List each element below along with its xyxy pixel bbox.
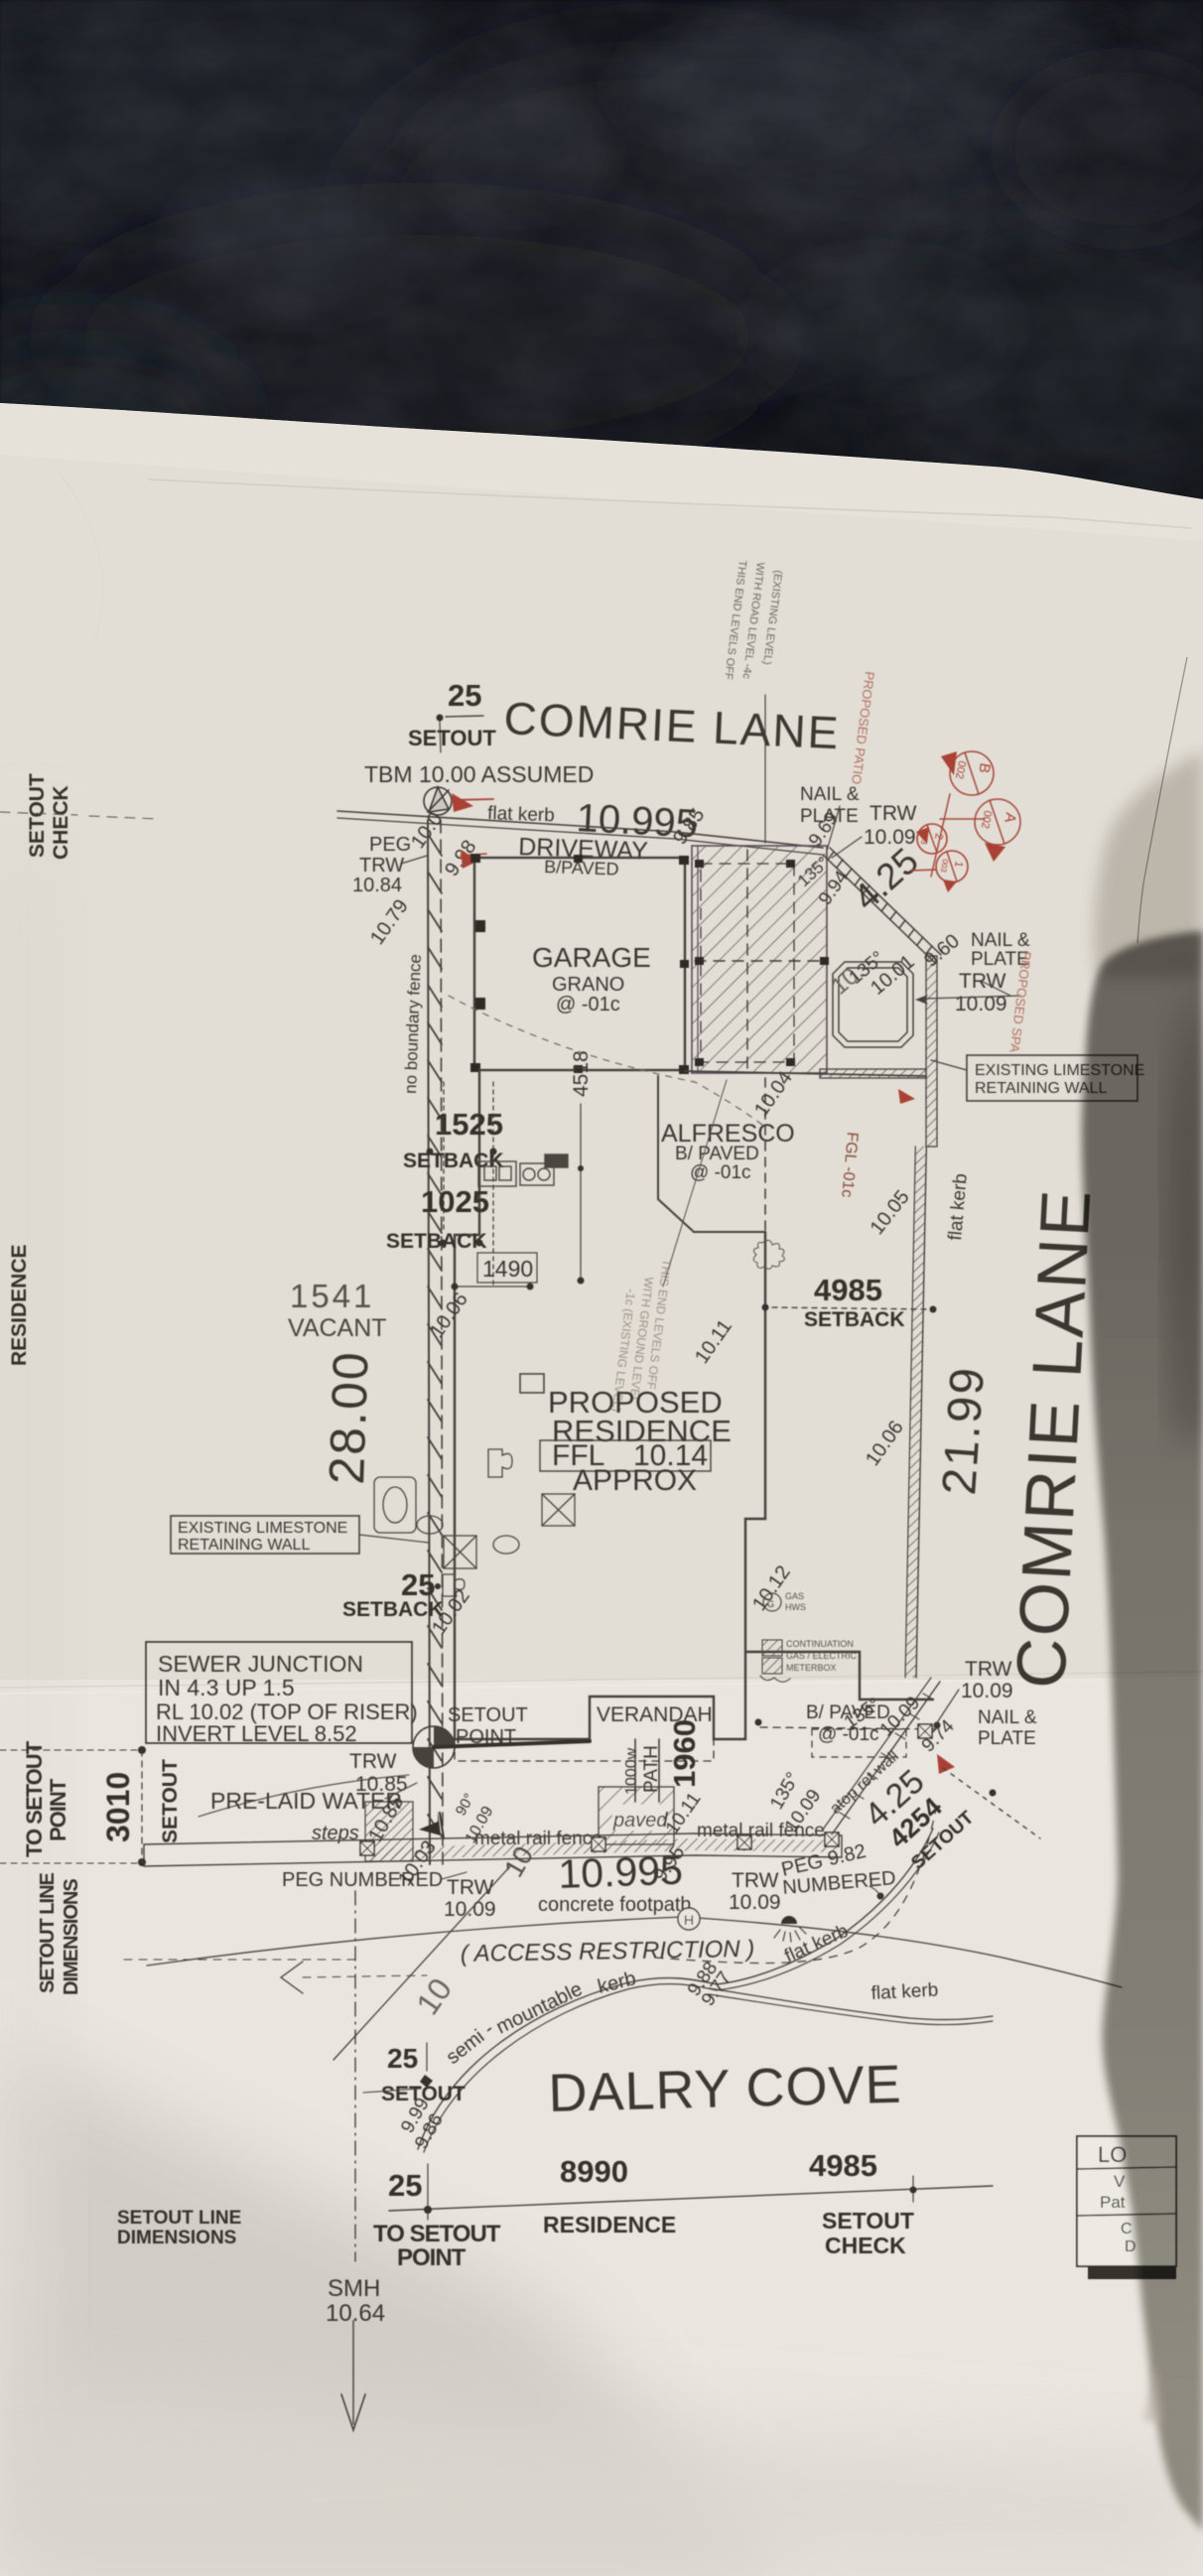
- svg-text:C: C: [1121, 2221, 1133, 2237]
- svg-text:APPROX: APPROX: [573, 1464, 697, 1497]
- svg-text:RESIDENCE: RESIDENCE: [8, 1244, 31, 1366]
- svg-text:4985: 4985: [814, 1273, 882, 1307]
- svg-text:CHECK: CHECK: [50, 785, 72, 860]
- svg-text:21.99: 21.99: [933, 1364, 995, 1497]
- svg-text:SETOUT: SETOUT: [408, 726, 496, 750]
- svg-text:10.09: 10.09: [961, 1680, 1013, 1702]
- svg-text:10.84: 10.84: [352, 875, 402, 896]
- svg-text:DIMENSIONS: DIMENSIONS: [117, 2228, 236, 2248]
- svg-text:concrete footpath: concrete footpath: [538, 1894, 692, 1916]
- svg-text:SETOUT: SETOUT: [159, 1759, 182, 1843]
- svg-text:DIMENSIONS: DIMENSIONS: [61, 1879, 82, 1995]
- svg-text:POINT: POINT: [397, 2244, 467, 2271]
- svg-text:TBM 10.00 ASSUMED: TBM 10.00 ASSUMED: [364, 761, 594, 787]
- svg-text:GAS: GAS: [785, 1591, 804, 1601]
- svg-text:SETOUT LINE: SETOUT LINE: [37, 1872, 59, 1993]
- svg-text:TRW: TRW: [965, 1658, 1012, 1681]
- svg-text:CHECK: CHECK: [825, 2233, 906, 2258]
- svg-text:1541: 1541: [290, 1278, 374, 1314]
- svg-text:SMH: SMH: [328, 2275, 380, 2302]
- svg-text:1490: 1490: [482, 1256, 533, 1282]
- svg-text:10.09: 10.09: [864, 826, 916, 849]
- svg-text:1025: 1025: [421, 1184, 489, 1219]
- svg-text:SETOUT: SETOUT: [26, 773, 49, 858]
- svg-text:TO SETOUT: TO SETOUT: [22, 1740, 47, 1857]
- svg-text:METERBOX: METERBOX: [786, 1663, 837, 1673]
- svg-text:IN 4.3 UP 1.5: IN 4.3 UP 1.5: [158, 1675, 295, 1700]
- svg-text:NAIL &: NAIL &: [978, 1707, 1037, 1728]
- svg-text:25: 25: [401, 1567, 435, 1602]
- svg-text:4518: 4518: [570, 1050, 593, 1097]
- svg-text:4985: 4985: [809, 2148, 877, 2183]
- svg-text:INVERT LEVEL 8.52: INVERT LEVEL 8.52: [156, 1721, 357, 1746]
- svg-text:SETBACK: SETBACK: [804, 1308, 905, 1331]
- svg-text:TRW: TRW: [869, 802, 917, 825]
- svg-text:H: H: [684, 1912, 694, 1928]
- svg-text:G: G: [767, 1599, 774, 1609]
- svg-text:3010: 3010: [100, 1772, 136, 1842]
- svg-text:10.09: 10.09: [729, 1891, 781, 1914]
- svg-text:B/ PAVED: B/ PAVED: [675, 1144, 759, 1164]
- svg-text:HWS: HWS: [785, 1602, 806, 1612]
- svg-text:PATH: PATH: [641, 1745, 662, 1793]
- svg-text:PLATE: PLATE: [800, 806, 859, 827]
- svg-text:25: 25: [387, 2043, 418, 2074]
- svg-text:GAS / ELECTRIC: GAS / ELECTRIC: [786, 1651, 858, 1661]
- svg-text:SETOUT: SETOUT: [448, 1704, 528, 1726]
- svg-text:NAIL &: NAIL &: [971, 930, 1030, 951]
- svg-text:25: 25: [388, 2168, 422, 2203]
- svg-text:D: D: [1125, 2238, 1136, 2255]
- svg-text:paved: paved: [612, 1810, 668, 1831]
- svg-text:RESIDENCE: RESIDENCE: [543, 2212, 676, 2237]
- svg-text:SETOUT LINE: SETOUT LINE: [117, 2208, 241, 2229]
- svg-text:SETBACK: SETBACK: [342, 1598, 444, 1621]
- svg-text:PLATE: PLATE: [978, 1728, 1036, 1749]
- svg-text:SETBACK: SETBACK: [386, 1230, 487, 1253]
- svg-text:CONTINUATION: CONTINUATION: [786, 1639, 854, 1649]
- svg-text:TRW: TRW: [732, 1869, 779, 1892]
- svg-text:25: 25: [448, 678, 481, 713]
- svg-text:@ -01c: @ -01c: [690, 1162, 751, 1183]
- svg-text:1960: 1960: [667, 1719, 702, 1788]
- svg-text:VACANT: VACANT: [288, 1314, 387, 1342]
- svg-text:POINT: POINT: [46, 1778, 70, 1841]
- svg-text:DALRY COVE: DALRY COVE: [548, 2055, 903, 2123]
- svg-text:28.00: 28.00: [319, 1349, 379, 1485]
- svg-text:NAIL &: NAIL &: [800, 784, 860, 805]
- svg-text:SETOUT: SETOUT: [822, 2208, 914, 2234]
- svg-text:8990: 8990: [560, 2154, 628, 2189]
- svg-text:PEG: PEG: [369, 834, 411, 856]
- svg-text:GRANO: GRANO: [552, 974, 624, 996]
- svg-text:@ -01c: @ -01c: [556, 994, 620, 1016]
- svg-text:GARAGE: GARAGE: [532, 942, 651, 973]
- svg-text:TRW: TRW: [447, 1876, 494, 1899]
- svg-text:TRW: TRW: [349, 1750, 397, 1773]
- svg-text:TO SETOUT: TO SETOUT: [373, 2221, 501, 2247]
- svg-text:RETAINING WALL: RETAINING WALL: [178, 1537, 310, 1554]
- svg-text:SEWER JUNCTION: SEWER JUNCTION: [158, 1651, 363, 1677]
- svg-text:flat kerb: flat kerb: [870, 1979, 939, 2004]
- svg-text:10.09: 10.09: [444, 1898, 496, 1921]
- svg-text:TRW: TRW: [359, 855, 404, 877]
- svg-text:10.64: 10.64: [326, 2300, 385, 2327]
- svg-text:Pat: Pat: [1100, 2193, 1126, 2212]
- svg-text:EXISTING LIMESTONE: EXISTING LIMESTONE: [178, 1520, 347, 1537]
- svg-text:V: V: [1114, 2172, 1126, 2191]
